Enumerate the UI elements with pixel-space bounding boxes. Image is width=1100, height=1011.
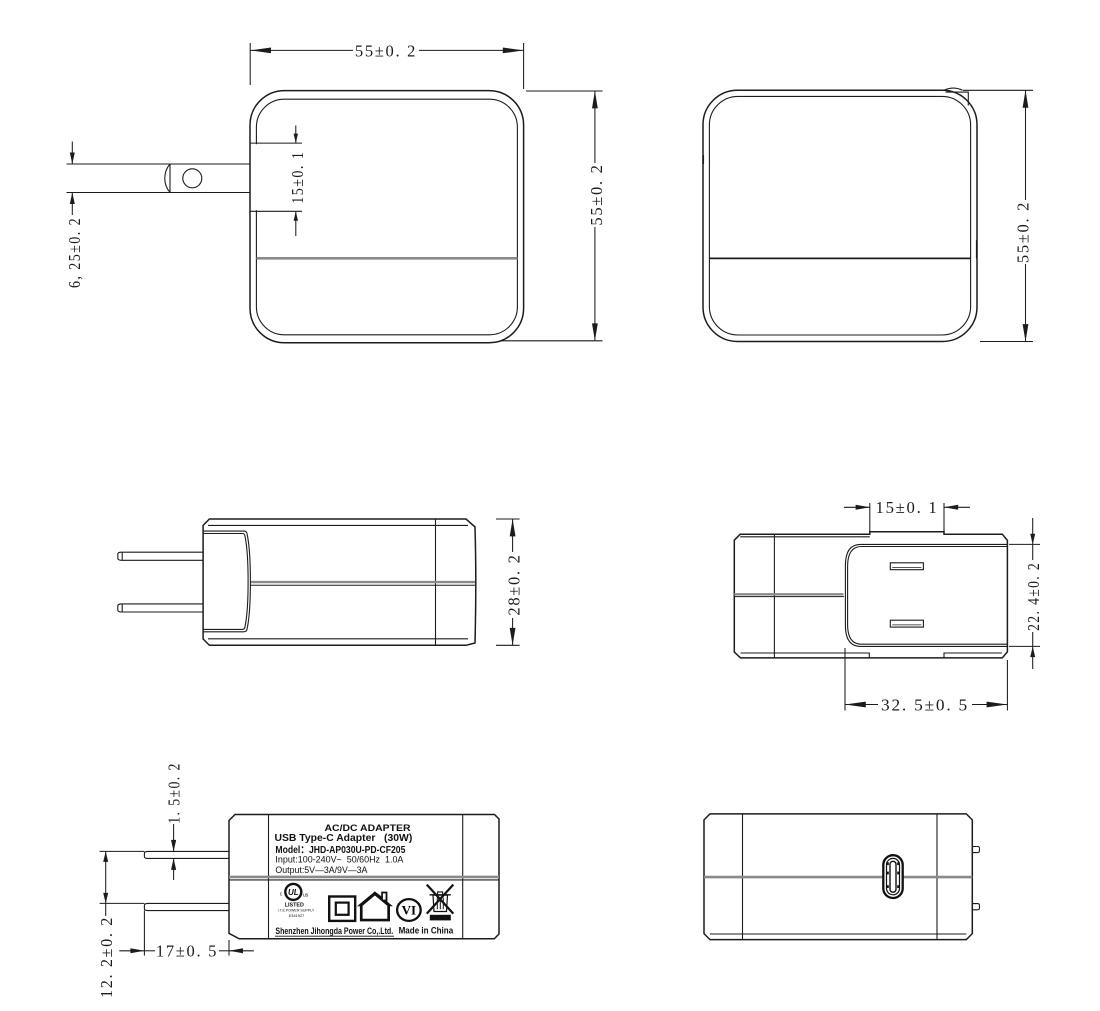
svg-text:Made in China: Made in China bbox=[399, 926, 454, 937]
svg-text:12. 2±0. 2: 12. 2±0. 2 bbox=[97, 916, 116, 998]
svg-text:USB Type-C Adapter (30W): USB Type-C Adapter (30W) bbox=[275, 833, 413, 844]
svg-text:Output:5V—3A/9V—3A: Output:5V—3A/9V—3A bbox=[275, 865, 368, 875]
svg-text:32. 5±0. 5: 32. 5±0. 5 bbox=[881, 696, 969, 715]
svg-text:55±0. 2: 55±0. 2 bbox=[355, 42, 417, 61]
svg-text:VI: VI bbox=[402, 903, 416, 918]
svg-text:15±0. 1: 15±0. 1 bbox=[288, 151, 307, 204]
svg-text:15±0. 1: 15±0. 1 bbox=[876, 498, 939, 517]
svg-text:Shenzhen Jihongda Power Co,.Lt: Shenzhen Jihongda Power Co,.Ltd. bbox=[275, 926, 393, 937]
svg-text:us: us bbox=[303, 893, 309, 899]
svg-text:17±0. 5: 17±0. 5 bbox=[156, 942, 218, 961]
svg-text:I.T.E.POWER SUPPLY: I.T.E.POWER SUPPLY bbox=[278, 909, 315, 913]
svg-text:UL: UL bbox=[288, 888, 299, 897]
svg-text:1. 5±0. 2: 1. 5±0. 2 bbox=[165, 762, 184, 824]
svg-text:55±0. 2: 55±0. 2 bbox=[587, 163, 606, 225]
svg-text:22. 4±0. 2: 22. 4±0. 2 bbox=[1024, 562, 1043, 631]
svg-text:6, 25±0. 2: 6, 25±0. 2 bbox=[65, 217, 84, 288]
svg-text:55±0. 2: 55±0. 2 bbox=[1014, 201, 1033, 263]
svg-text:E341927: E341927 bbox=[289, 913, 305, 918]
svg-text:28±0. 2: 28±0. 2 bbox=[504, 553, 523, 615]
svg-text:Input:100-240V~ 50/60Hz 1.0A: Input:100-240V~ 50/60Hz 1.0A bbox=[275, 855, 404, 865]
